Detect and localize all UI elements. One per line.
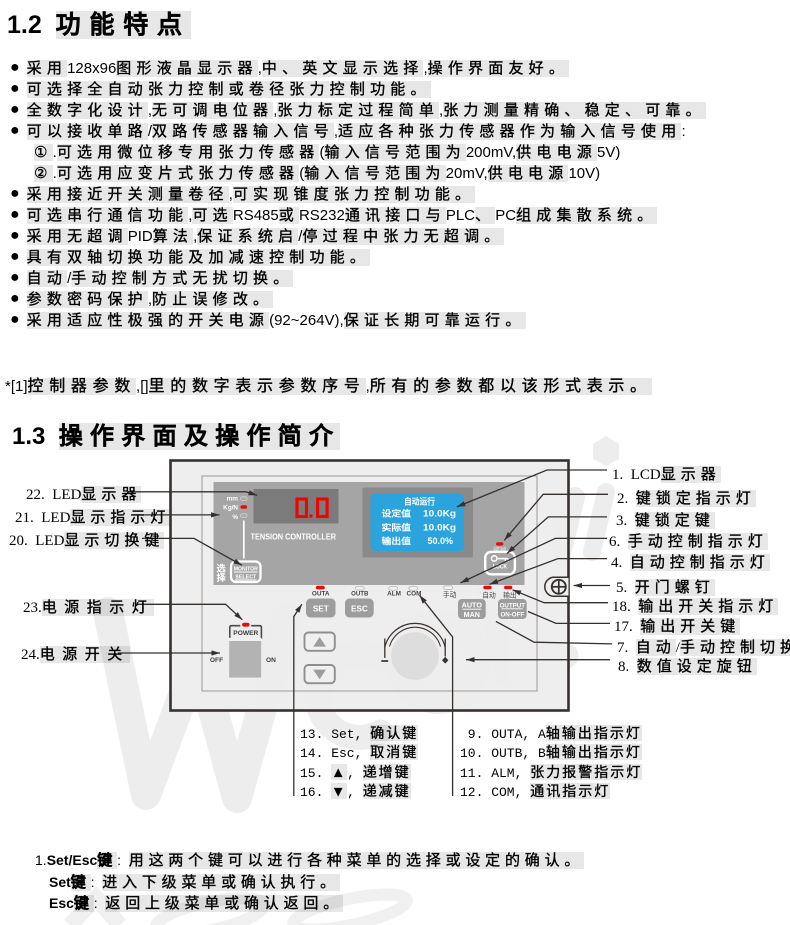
svg-text:MAN: MAN: [464, 610, 480, 619]
svg-text:SET: SET: [313, 604, 329, 613]
svg-text:OUTA: OUTA: [312, 590, 330, 597]
svg-text:ON-OFF: ON-OFF: [500, 611, 524, 618]
svg-text:50.0%: 50.0%: [428, 536, 454, 546]
svg-text:OUTB: OUTB: [351, 591, 369, 598]
svg-text:ON: ON: [266, 657, 276, 664]
svg-text:AUTO: AUTO: [462, 601, 483, 610]
svg-text:10.0Kg: 10.0Kg: [423, 508, 456, 518]
svg-text:输出值: 输出值: [382, 536, 412, 546]
svg-text:ALM: ALM: [387, 591, 401, 598]
svg-text:择: 择: [217, 572, 227, 583]
svg-text:ESC: ESC: [351, 604, 368, 613]
svg-text:设定值: 设定值: [382, 508, 412, 518]
svg-text:OFF: OFF: [210, 657, 223, 664]
svg-text:mm: mm: [227, 495, 239, 502]
svg-text:OUTPUT: OUTPUT: [500, 602, 526, 609]
svg-text:输出: 输出: [503, 590, 516, 599]
svg-text:TENSION CONTROLLER: TENSION CONTROLLER: [251, 532, 337, 542]
svg-text:COM: COM: [407, 591, 422, 598]
svg-text:POWER: POWER: [233, 630, 258, 637]
svg-text:选: 选: [217, 563, 227, 574]
svg-text:手动: 手动: [443, 590, 457, 599]
svg-text:%: %: [232, 514, 238, 521]
svg-text:自动: 自动: [482, 590, 496, 599]
svg-text:Kg/N: Kg/N: [223, 504, 238, 511]
svg-text:实际值: 实际值: [382, 523, 412, 533]
svg-text:10.0Kg: 10.0Kg: [423, 523, 456, 533]
svg-text:自动运行: 自动运行: [404, 497, 436, 507]
